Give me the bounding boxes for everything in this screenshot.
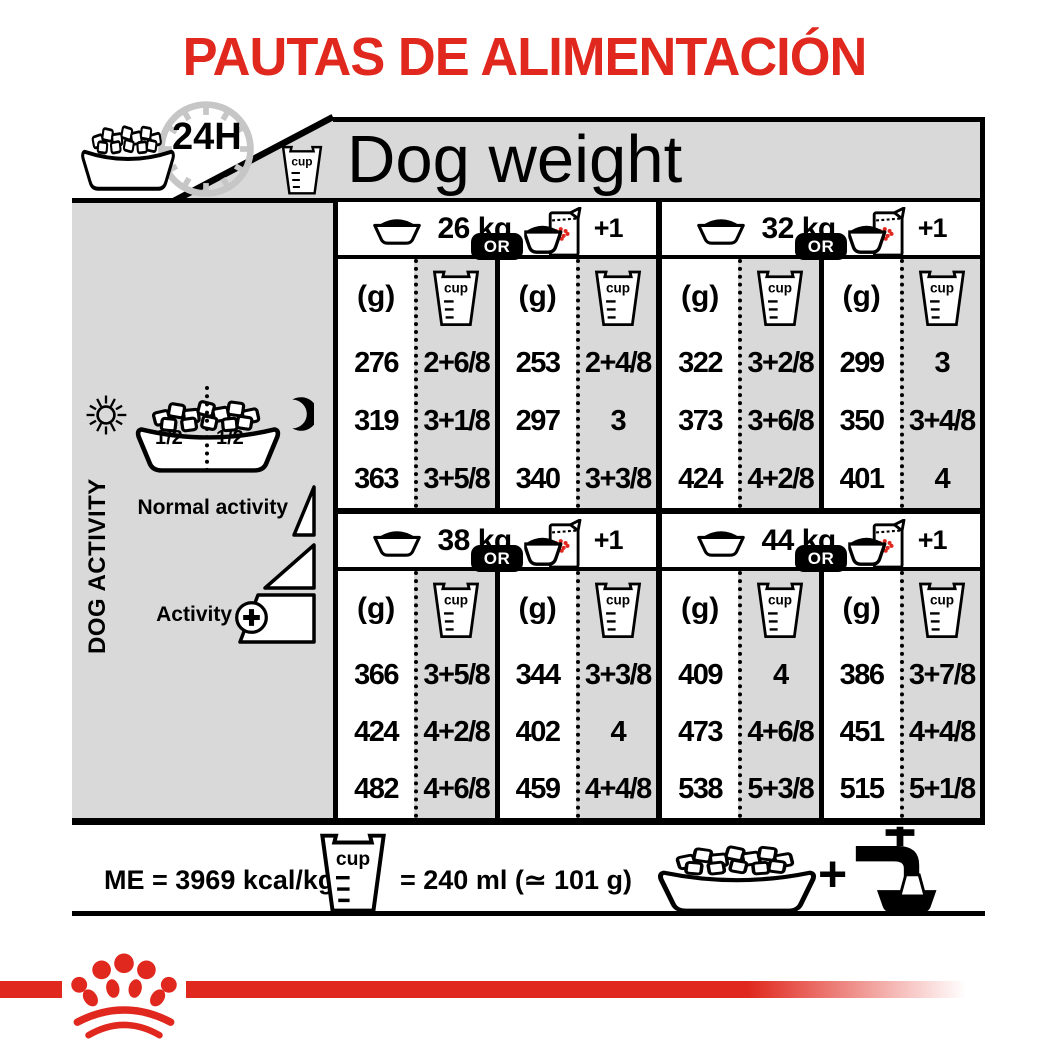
svg-text:cup: cup <box>291 154 312 168</box>
cup-cell: 4 <box>904 450 980 508</box>
grams-column: (g) 276 319 363 <box>338 259 414 508</box>
grams-cell: 366 <box>338 647 414 704</box>
half-right-label: 1/2 <box>216 427 244 450</box>
cup-cell: 4 <box>742 647 818 704</box>
grams-header: (g) <box>824 259 900 335</box>
grams-header: (g) <box>338 259 414 335</box>
cup-column: cup 3+7/8 4+4/8 5+1/8 <box>900 571 980 818</box>
cup-header: cup <box>418 259 494 335</box>
grams-column: (g) 409 473 538 <box>662 571 738 818</box>
or-badge: OR <box>471 545 523 572</box>
cup-cell: 4+6/8 <box>418 761 494 818</box>
water-tap-icon <box>852 824 948 916</box>
cup-cell: 3+7/8 <box>904 647 980 704</box>
measuring-cup-icon: cup <box>432 268 480 327</box>
grams-column: (g) 386 451 515 <box>819 571 900 818</box>
grams-label: (g) <box>842 280 880 314</box>
moon-icon <box>282 392 314 436</box>
svg-text:cup: cup <box>444 592 468 607</box>
plus-one-label: +1 <box>594 213 623 244</box>
cup-header: cup <box>580 259 656 335</box>
cup-cell: 2+6/8 <box>418 335 494 393</box>
cup-header: cup <box>742 259 818 335</box>
svg-text:cup: cup <box>930 592 954 607</box>
grams-cell: 538 <box>662 761 738 818</box>
cup-cell: 3+3/8 <box>580 647 656 704</box>
section-body: (g) 322 373 424 cup 3+2/8 3+6/8 4+2/8 (g… <box>662 259 980 508</box>
cup-cell: 3+5/8 <box>418 647 494 704</box>
cup-cell: 5+3/8 <box>742 761 818 818</box>
grams-column: (g) 253 297 340 <box>495 259 576 508</box>
grams-header: (g) <box>662 571 738 647</box>
royal-canin-paw-logo-icon <box>68 948 180 1044</box>
section-32kg: 32 kg +1 OR (g) 322 373 424 cup 3+2/8 3+ <box>656 202 980 508</box>
cup-column: cup 2+6/8 3+1/8 3+5/8 <box>414 259 494 508</box>
svg-text:cup: cup <box>444 280 468 295</box>
half-split-line <box>205 386 209 472</box>
cup-header: cup <box>904 571 980 647</box>
weight-header: 44 kg +1 OR <box>662 514 980 571</box>
brand-bar <box>0 981 62 998</box>
cup-cell: 5+1/8 <box>904 761 980 818</box>
section-body: (g) 409 473 538 cup 4 4+6/8 5+3/8 (g) 38… <box>662 571 980 818</box>
measuring-cup-icon: cup <box>918 580 966 639</box>
plus-one-label: +1 <box>594 525 623 556</box>
svg-text:cup: cup <box>768 592 792 607</box>
cup-header: cup <box>904 259 980 335</box>
cup-cell: 3 <box>904 335 980 393</box>
cup-cell: 3+3/8 <box>580 450 656 508</box>
grams-column: (g) 366 424 482 <box>338 571 414 818</box>
cup-volume-label: = 240 ml (≃ 101 g) <box>400 865 632 896</box>
weight-header: 38 kg +1 OR <box>338 514 656 571</box>
grams-cell: 299 <box>824 335 900 393</box>
measuring-cup-icon: cup <box>432 580 480 639</box>
feeding-guidelines-panel: PAUTAS DE ALIMENTACIÓN Dog weight 24H cu… <box>0 0 1049 1049</box>
feeding-table-band-1: 26 kg +1 OR (g) 276 319 363 cup 2+6/8 3+ <box>333 202 985 514</box>
or-badge: OR <box>471 233 523 260</box>
cup-cell: 3+5/8 <box>418 450 494 508</box>
grams-cell: 297 <box>500 393 576 451</box>
cup-column: cup 3 3+4/8 4 <box>900 259 980 508</box>
svg-text:cup: cup <box>606 280 630 295</box>
grams-cell: 386 <box>824 647 900 704</box>
cup-cell: 4+2/8 <box>742 450 818 508</box>
svg-text:cup: cup <box>606 592 630 607</box>
bowl-icon <box>695 525 747 557</box>
bowl-pouch-icon <box>524 207 586 257</box>
bowl-pouch-icon <box>524 519 586 569</box>
bowl-icon <box>695 213 747 245</box>
grams-cell: 340 <box>500 450 576 508</box>
brand-bar <box>186 981 966 998</box>
grams-cell: 451 <box>824 704 900 761</box>
measuring-cup-icon: cup <box>756 580 804 639</box>
cup-cell: 3 <box>580 393 656 451</box>
half-left-label: 1/2 <box>155 427 183 450</box>
grams-cell: 515 <box>824 761 900 818</box>
bowl-icon <box>371 525 423 557</box>
measuring-cup-icon: cup <box>594 268 642 327</box>
section-44kg: 44 kg +1 OR (g) 409 473 538 cup 4 4+6/8 <box>656 514 980 818</box>
hours-24h-label: 24H <box>172 116 242 159</box>
section-38kg: 38 kg +1 OR (g) 366 424 482 cup 3+5/8 4+ <box>338 514 656 818</box>
grams-cell: 319 <box>338 393 414 451</box>
cup-column: cup 2+4/8 3 3+3/8 <box>576 259 656 508</box>
bowl-pouch-icon <box>848 207 910 257</box>
svg-text:cup: cup <box>768 280 792 295</box>
grams-cell: 409 <box>662 647 738 704</box>
cup-header: cup <box>580 571 656 647</box>
grams-cell: 350 <box>824 393 900 451</box>
measuring-cup-icon: cup <box>756 268 804 327</box>
grams-label: (g) <box>681 592 719 626</box>
grams-cell: 424 <box>662 450 738 508</box>
activity-triangle-medium-icon <box>261 541 318 592</box>
cup-cell: 4+2/8 <box>418 704 494 761</box>
or-badge: OR <box>795 545 847 572</box>
kibble-bowl-icon <box>80 118 176 192</box>
dog-activity-label: DOG ACTIVITY <box>84 478 116 654</box>
plus-one-label: +1 <box>918 213 947 244</box>
grams-cell: 482 <box>338 761 414 818</box>
weight-header: 32 kg +1 OR <box>662 202 980 259</box>
bowl-icon <box>371 213 423 245</box>
cup-cell: 4+4/8 <box>580 761 656 818</box>
measuring-cup-icon: cup <box>316 830 390 914</box>
grams-header: (g) <box>500 571 576 647</box>
grams-cell: 253 <box>500 335 576 393</box>
measuring-cup-icon: cup <box>918 268 966 327</box>
bowl-pouch-icon <box>848 519 910 569</box>
grams-label: (g) <box>357 592 395 626</box>
grams-cell: 424 <box>338 704 414 761</box>
feeding-table-band-2: 38 kg +1 OR (g) 366 424 482 cup 3+5/8 4+ <box>333 514 985 818</box>
section-body: (g) 366 424 482 cup 3+5/8 4+2/8 4+6/8 (g… <box>338 571 656 818</box>
normal-activity-label: Normal activity <box>126 496 288 520</box>
grams-cell: 363 <box>338 450 414 508</box>
grams-cell: 344 <box>500 647 576 704</box>
grams-header: (g) <box>824 571 900 647</box>
measuring-cup-icon: cup <box>281 143 323 196</box>
cup-column: cup 3+2/8 3+6/8 4+2/8 <box>738 259 818 508</box>
grams-column: (g) 344 402 459 <box>495 571 576 818</box>
svg-text:cup: cup <box>930 280 954 295</box>
section-26kg: 26 kg +1 OR (g) 276 319 363 cup 2+6/8 3+ <box>338 202 656 508</box>
dog-weight-label: Dog weight <box>347 121 682 198</box>
cup-cell: 3+4/8 <box>904 393 980 451</box>
cup-cell: 2+4/8 <box>580 335 656 393</box>
or-badge: OR <box>795 233 847 260</box>
divider <box>72 818 985 825</box>
grams-header: (g) <box>500 259 576 335</box>
grams-cell: 473 <box>662 704 738 761</box>
grams-column: (g) 322 373 424 <box>662 259 738 508</box>
grams-header: (g) <box>662 259 738 335</box>
cup-cell: 3+6/8 <box>742 393 818 451</box>
grams-label: (g) <box>518 280 556 314</box>
section-body: (g) 276 319 363 cup 2+6/8 3+1/8 3+5/8 (g… <box>338 259 656 508</box>
cup-column: cup 3+5/8 4+2/8 4+6/8 <box>414 571 494 818</box>
grams-cell: 322 <box>662 335 738 393</box>
cup-column: cup 3+3/8 4 4+4/8 <box>576 571 656 818</box>
weight-header: 26 kg +1 OR <box>338 202 656 259</box>
grams-cell: 276 <box>338 335 414 393</box>
cup-header: cup <box>742 571 818 647</box>
grams-label: (g) <box>357 280 395 314</box>
svg-text:cup: cup <box>336 849 370 870</box>
kibble-bowl-icon <box>656 838 818 914</box>
cup-cell: 4 <box>580 704 656 761</box>
cup-cell: 3+1/8 <box>418 393 494 451</box>
cup-column: cup 4 4+6/8 5+3/8 <box>738 571 818 818</box>
grams-cell: 459 <box>500 761 576 818</box>
activity-triangle-small-icon <box>291 483 318 539</box>
grams-label: (g) <box>842 592 880 626</box>
grams-label: (g) <box>681 280 719 314</box>
grams-header: (g) <box>338 571 414 647</box>
measuring-cup-icon: cup <box>594 580 642 639</box>
metabolizable-energy-label: ME = 3969 kcal/kg <box>104 865 334 896</box>
cup-header: cup <box>418 571 494 647</box>
grams-column: (g) 299 350 401 <box>819 259 900 508</box>
cup-cell: 3+2/8 <box>742 335 818 393</box>
plus-label: + <box>818 845 847 903</box>
activity-plus-icon <box>233 599 270 636</box>
activity-plus-label: Activity <box>120 603 232 627</box>
grams-label: (g) <box>518 592 556 626</box>
page-title: PAUTAS DE ALIMENTACIÓN <box>16 26 1034 88</box>
grams-cell: 401 <box>824 450 900 508</box>
grams-cell: 373 <box>662 393 738 451</box>
cup-cell: 4+4/8 <box>904 704 980 761</box>
cup-cell: 4+6/8 <box>742 704 818 761</box>
sun-icon <box>83 392 129 438</box>
grams-cell: 402 <box>500 704 576 761</box>
plus-one-label: +1 <box>918 525 947 556</box>
divider <box>72 911 985 916</box>
